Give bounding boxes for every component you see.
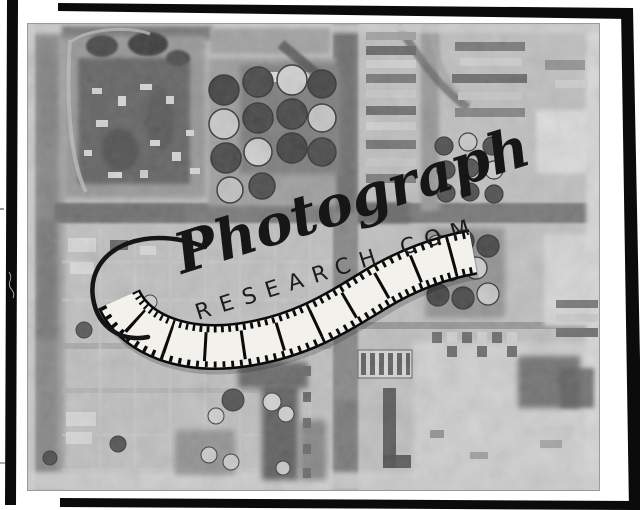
frame-top: [58, 3, 630, 19]
aerial-photo: [27, 23, 602, 491]
film-grain: [27, 23, 600, 491]
frame-left: [5, 0, 18, 505]
margin-tick: [0, 208, 4, 210]
scanned-photo-page: Photograph RESEARCH.COM: [0, 0, 640, 510]
margin-tick: [0, 462, 5, 464]
frame-right: [621, 8, 640, 510]
frame-bottom: [60, 498, 638, 510]
